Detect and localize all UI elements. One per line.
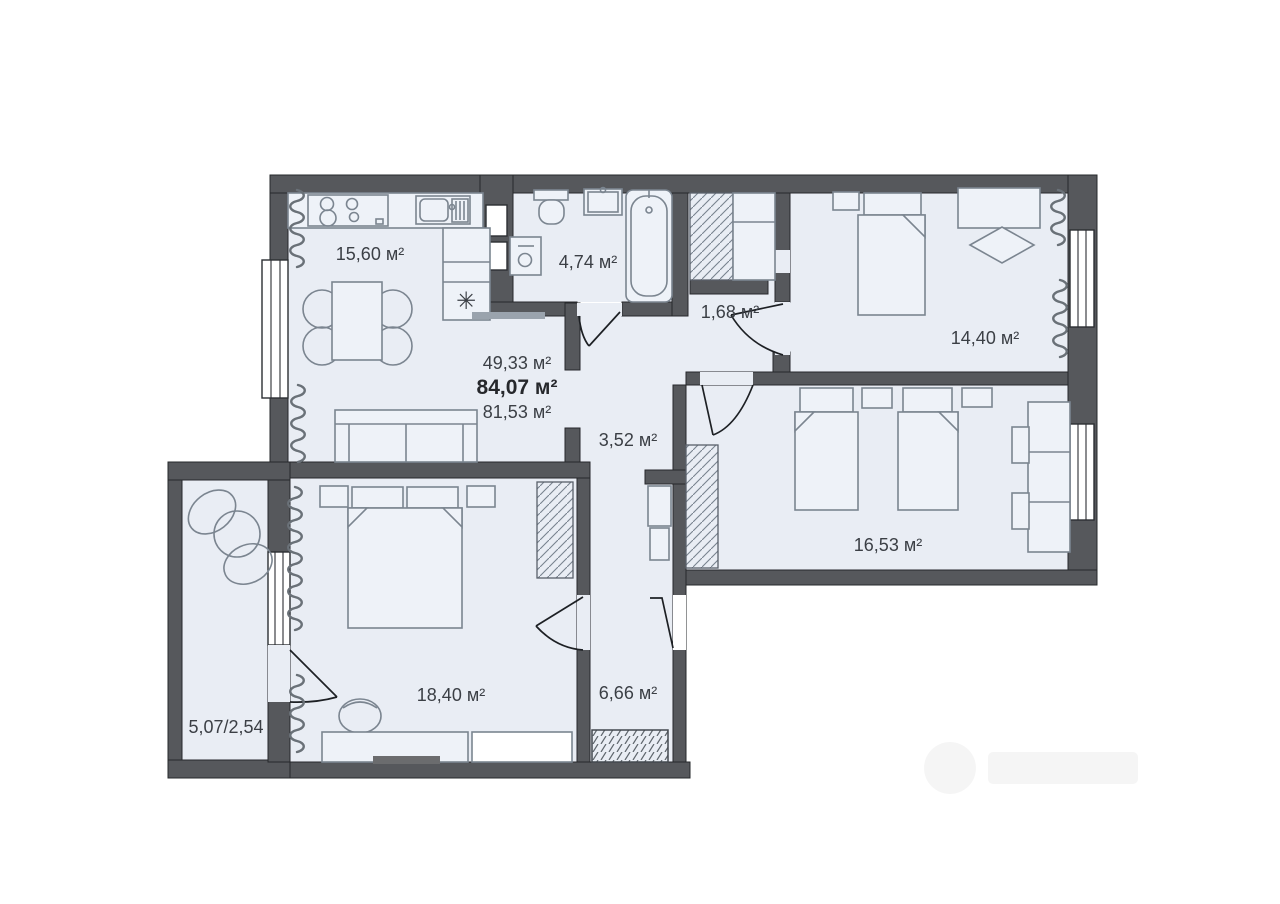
room-corridor-floor (580, 316, 686, 478)
hall-closet (690, 193, 775, 280)
bed-icon-second-2 (898, 388, 958, 510)
label-bedroom-lower: 18,40 м² (417, 685, 485, 705)
wardrobe-icon-bedroom-lower (537, 482, 573, 578)
bed-icon-double (348, 487, 462, 628)
opening-living-corridor (565, 370, 580, 428)
nightstand-icon (467, 486, 495, 507)
tv-console-icon (373, 756, 440, 764)
threshold-bar (472, 312, 545, 319)
label-room-second: 16,53 м² (854, 535, 922, 555)
label-reduced-area: 81,53 м² (483, 402, 551, 422)
label-total-area: 84,07 м² (477, 376, 558, 399)
wardrobe-icon-hall-right (733, 193, 775, 280)
shelf-icon (650, 528, 669, 560)
bathroom-sink-icon (584, 188, 622, 216)
wall-bathroom-hall (672, 193, 688, 316)
window-kitchen (262, 260, 288, 398)
closet-niche-gap (775, 250, 790, 273)
wardrobe-icon-room-second (686, 445, 718, 568)
stove-icon (308, 195, 388, 226)
watermark (924, 742, 1138, 794)
desk-icon-main (958, 188, 1040, 228)
wall-balcony-left (168, 480, 182, 762)
shelf-icon (648, 486, 671, 526)
label-bedroom-main: 14,40 м² (951, 328, 1019, 348)
sofa-icon (335, 410, 477, 462)
label-living-area: 49,33 м² (483, 353, 551, 373)
cabinet-icon (472, 732, 572, 762)
floor-plan: ✳ (0, 0, 1280, 904)
label-balcony: 5,07/2,54 (188, 717, 263, 737)
wall-stub-corridor (645, 470, 686, 484)
label-bathroom: 4,74 м² (559, 252, 617, 272)
washing-machine-icon (510, 237, 541, 275)
wall-bottom-exterior (270, 762, 690, 778)
wall-balcony-bottom (168, 760, 290, 778)
bed-icon-second-1 (795, 388, 858, 510)
wardrobe-icon-hall-left (690, 193, 733, 280)
kitchen-sink-icon (416, 196, 470, 224)
wall-corridor-right (673, 385, 686, 762)
entry-mat-icon (592, 730, 668, 762)
label-kitchen-living: 15,60 м² (336, 244, 404, 264)
wall-living-bedroom (270, 462, 590, 478)
area-totals: 49,33 м² 84,07 м² 81,53 м² (477, 353, 558, 422)
label-hall-entry: 6,66 м² (599, 683, 657, 703)
kitchen-cabinet-column: ✳ (443, 228, 490, 320)
fridge-icon: ✳ (456, 287, 476, 315)
bed-icon-main (858, 193, 925, 315)
window-bedroom-main (1070, 230, 1094, 327)
nightstand-icon (962, 388, 992, 407)
chair-icon (1012, 493, 1029, 529)
label-corridor: 3,52 м² (599, 430, 657, 450)
wall-balcony-top (168, 462, 290, 480)
nightstand-icon (862, 388, 892, 408)
bathtub-icon (626, 190, 672, 302)
wall-room-second-bottom (686, 570, 1097, 585)
label-hall-small: 1,68 м² (701, 302, 759, 322)
nightstand-icon (833, 192, 859, 210)
window-room-second (1070, 424, 1094, 520)
nightstand-icon (320, 486, 348, 507)
chair-icon (1012, 427, 1029, 463)
wall-closet-bottom (690, 280, 768, 294)
wall-hall-bedroom-main (775, 193, 790, 302)
